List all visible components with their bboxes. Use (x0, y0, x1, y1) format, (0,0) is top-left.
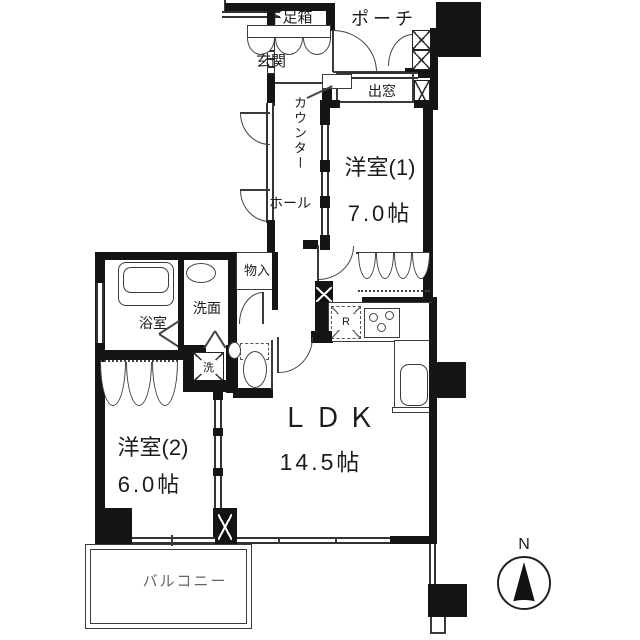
genkan-step-line (275, 82, 325, 84)
floor-plan: 下足箱 玄関 ポーチ 出窓 カウンター ホール 洋室(1) 7.0帖 (0, 0, 640, 640)
compass-north-label: N (512, 536, 536, 554)
wall (95, 252, 235, 260)
wall (272, 252, 278, 310)
pipe-shaft (412, 50, 431, 70)
washroom-label: 洗面 (184, 300, 230, 316)
wall (213, 390, 223, 400)
wall (267, 220, 275, 253)
window (237, 537, 390, 544)
sliding-partition (321, 105, 329, 250)
wall (320, 196, 330, 208)
wall (429, 303, 437, 543)
closet-pole-line (358, 290, 430, 294)
bay-window-label: 出窓 (346, 82, 418, 100)
room1-size: 7.0帖 (334, 198, 426, 226)
wall (303, 240, 318, 249)
wall (436, 2, 481, 57)
door-swing (318, 246, 354, 280)
kitchen-sink (400, 364, 428, 406)
sliding-partition (214, 390, 222, 512)
balcony-label: バルコニー (133, 570, 237, 590)
window-mullion (278, 537, 280, 544)
counter-label: カウンター (290, 96, 309, 182)
window-mullion (335, 537, 337, 544)
porch-label: ポーチ (338, 6, 430, 30)
compass-icon (497, 556, 551, 610)
folding-door (358, 253, 376, 279)
room2-size: 6.0帖 (104, 468, 196, 498)
wall (95, 350, 183, 360)
wall (213, 468, 223, 476)
toilet-bowl (243, 351, 267, 388)
bathtub-inner (123, 267, 169, 293)
shoe-cabinet (247, 25, 331, 38)
storage-label: 物入 (239, 261, 275, 277)
washbasin (186, 263, 216, 283)
entry-door-swing (333, 30, 377, 72)
step-line (444, 617, 446, 634)
closet-door-arc (126, 362, 152, 406)
shoe-box-label: 下足箱 (247, 7, 333, 25)
wall (213, 428, 223, 436)
refrigerator-label: R (338, 314, 354, 330)
genkan-label: 玄関 (240, 52, 302, 69)
duct-shaft (316, 287, 332, 302)
window (132, 537, 215, 544)
wall (183, 350, 193, 382)
bifold-door (214, 330, 226, 348)
door-swing (240, 190, 270, 222)
pillar (95, 508, 132, 545)
counter-edge (392, 407, 433, 413)
wall (320, 105, 330, 125)
meter-box-door-swing (388, 34, 413, 66)
hall-label: ホール (273, 195, 307, 211)
bifold-door (158, 333, 179, 348)
pillar (436, 362, 466, 398)
door-swing (279, 337, 313, 373)
room1-name: 洋室(1) (330, 152, 430, 180)
wall (430, 28, 438, 110)
wall (233, 388, 273, 398)
bifold-door (204, 330, 216, 348)
pillar-shaft (218, 514, 232, 540)
ldk-size: 14.5帖 (273, 444, 369, 476)
door-swing (240, 113, 270, 145)
wall (311, 331, 332, 343)
burner (377, 323, 386, 332)
compass-needle-notch (504, 600, 544, 610)
window (429, 544, 436, 584)
pipe-shaft (412, 30, 431, 50)
burner (369, 313, 378, 322)
wall (390, 536, 437, 544)
door-swing (239, 292, 263, 324)
room2-name: 洋室(2) (103, 430, 203, 462)
toilet-sink (228, 342, 241, 359)
folding-door (394, 253, 412, 279)
ldk-name: ＬＤＫ (285, 398, 377, 432)
folding-door (376, 253, 394, 279)
bathroom-window (96, 283, 104, 343)
closet-door-arc (152, 362, 178, 406)
wall (320, 160, 330, 172)
toilet-wall-line (271, 340, 273, 390)
burner (385, 311, 394, 320)
laundry-label: 洗 (201, 360, 216, 374)
wall (267, 74, 275, 106)
cabinet-door-arc (303, 38, 331, 55)
wall (428, 584, 467, 617)
sill-line (338, 101, 416, 103)
